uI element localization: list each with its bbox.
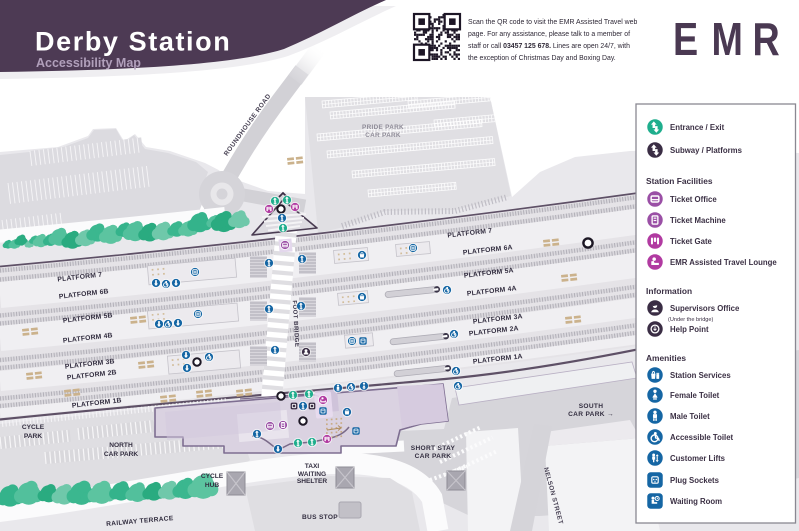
svg-text:Help Point: Help Point xyxy=(670,325,709,334)
svg-text:CAR PARK →: CAR PARK → xyxy=(568,411,614,418)
svg-text:Plug Sockets: Plug Sockets xyxy=(670,476,720,485)
svg-text:CAR PARK: CAR PARK xyxy=(415,453,452,460)
svg-text:PRIDE PARK: PRIDE PARK xyxy=(362,124,404,131)
svg-text:Female Toilet: Female Toilet xyxy=(670,391,720,400)
svg-text:Supervisors Office: Supervisors Office xyxy=(670,304,740,313)
svg-text:Customer Lifts: Customer Lifts xyxy=(670,454,726,463)
svg-text:Station Services: Station Services xyxy=(670,371,731,380)
svg-text:SHELTER: SHELTER xyxy=(297,478,328,485)
svg-text:Ticket Gate: Ticket Gate xyxy=(670,237,713,246)
svg-text:CAR PARK: CAR PARK xyxy=(104,451,139,458)
svg-text:WAITING: WAITING xyxy=(298,471,326,478)
svg-text:Derby Station: Derby Station xyxy=(35,27,231,57)
svg-text:BUS STOP: BUS STOP xyxy=(302,514,338,521)
svg-text:Scan the QR code to visit the: Scan the QR code to visit the EMR Assist… xyxy=(468,19,637,26)
svg-text:Ticket Office: Ticket Office xyxy=(670,195,717,204)
svg-text:NORTH: NORTH xyxy=(109,442,133,449)
svg-text:staff or call 03457 125 678. L: staff or call 03457 125 678. Lines are o… xyxy=(468,43,630,50)
svg-text:PARK: PARK xyxy=(24,433,42,440)
svg-text:Male Toilet: Male Toilet xyxy=(670,412,710,421)
svg-text:R: R xyxy=(753,13,780,64)
svg-text:EMR Assisted Travel Lounge: EMR Assisted Travel Lounge xyxy=(670,258,777,267)
svg-text:E: E xyxy=(673,13,698,64)
svg-text:M: M xyxy=(712,13,743,64)
svg-text:(Under the bridge): (Under the bridge) xyxy=(668,317,714,323)
svg-text:Accessible Toilet: Accessible Toilet xyxy=(670,433,734,442)
svg-text:the exception of Christmas Day: the exception of Christmas Day and Boxin… xyxy=(468,55,616,62)
svg-text:Entrance / Exit: Entrance / Exit xyxy=(670,123,725,132)
svg-text:page. For any assistance, plea: page. For any assistance, please talk to… xyxy=(468,31,630,38)
svg-text:Subway / Platforms: Subway / Platforms xyxy=(670,146,743,155)
svg-text:Ticket Machine: Ticket Machine xyxy=(670,216,726,225)
svg-text:SHORT STAY: SHORT STAY xyxy=(411,445,456,452)
svg-text:SOUTH: SOUTH xyxy=(579,403,604,410)
svg-text:Information: Information xyxy=(646,286,692,296)
svg-text:TAXI: TAXI xyxy=(305,463,320,470)
svg-text:CYCLE: CYCLE xyxy=(201,473,224,480)
svg-text:CAR PARK: CAR PARK xyxy=(365,132,401,139)
svg-text:Accessibility Map: Accessibility Map xyxy=(36,56,141,70)
svg-text:Station Facilities: Station Facilities xyxy=(646,176,713,186)
svg-text:Waiting Room: Waiting Room xyxy=(670,497,722,506)
svg-text:HUB: HUB xyxy=(205,482,220,489)
svg-text:CYCLE: CYCLE xyxy=(22,424,45,431)
svg-text:Amenities: Amenities xyxy=(646,353,686,363)
